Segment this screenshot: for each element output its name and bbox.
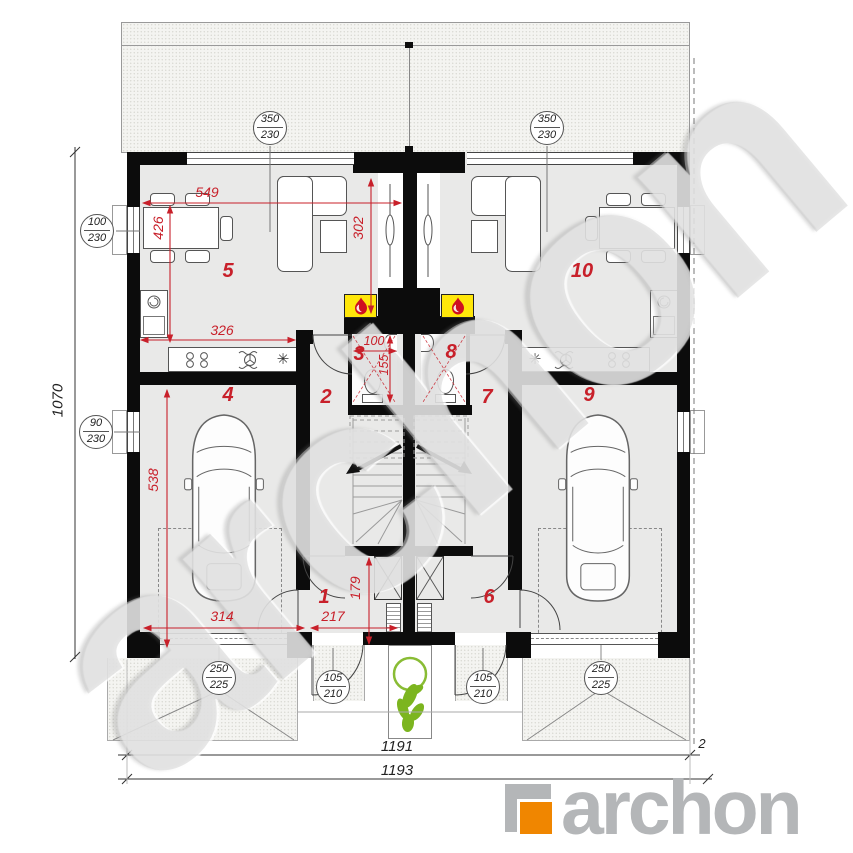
wardrobe (416, 556, 444, 600)
chair (185, 250, 210, 263)
tag-height: 225 (588, 678, 614, 693)
wall (127, 253, 140, 412)
freezer-icon: ✳ (268, 349, 298, 371)
tag-height: 210 (320, 687, 346, 702)
wall (345, 546, 473, 556)
window (677, 412, 690, 452)
dining-table (599, 207, 675, 249)
fireplace (441, 294, 474, 318)
chair (641, 193, 666, 206)
tag-height: 225 (206, 678, 232, 693)
dishwasher-icon (237, 350, 263, 370)
wardrobe (374, 556, 402, 600)
dishwasher-icon (553, 350, 579, 370)
floor-plan: ✳ ✳ (0, 0, 853, 853)
window (127, 412, 140, 452)
wardrobe-x (375, 557, 401, 599)
tag-width: 105 (470, 671, 496, 687)
wall (506, 632, 531, 658)
stove-burners-icon (604, 350, 634, 370)
window (467, 152, 633, 165)
terrace-divider-post (405, 42, 413, 48)
tag-height: 210 (470, 687, 496, 702)
hob-vent-icon (146, 294, 162, 310)
garage-door (160, 633, 287, 645)
room-number-5: 5 (211, 260, 245, 283)
washbasin-icon (421, 334, 434, 352)
tag-width: 90 (83, 416, 109, 432)
wall (348, 405, 472, 415)
room-number-7: 7 (470, 386, 504, 409)
toilet-tank (435, 394, 456, 403)
tag-width: 350 (534, 112, 560, 128)
wall (403, 173, 417, 289)
wall (127, 152, 140, 207)
window-sill (112, 410, 127, 454)
room-number-8: 8 (434, 341, 468, 364)
terrace-door-pocket (417, 173, 440, 288)
entry-door-size-tag: 105 210 (316, 670, 350, 704)
kitchen-sink (653, 316, 675, 335)
flame-icon (353, 296, 369, 316)
window-sill (690, 205, 705, 255)
wall (127, 632, 160, 658)
wall (677, 452, 690, 645)
wall (353, 152, 465, 173)
chair (150, 193, 175, 206)
wall (658, 632, 690, 658)
window-sill (112, 205, 127, 255)
wall (287, 632, 312, 658)
room-number-9: 9 (572, 384, 606, 407)
wall (296, 330, 313, 344)
overall-width-outer-label: 1193 (367, 762, 427, 779)
tag-width: 250 (206, 662, 232, 678)
wall (363, 632, 455, 645)
planter-box (388, 645, 432, 739)
tag-height: 230 (257, 128, 283, 143)
tag-width: 100 (84, 215, 110, 231)
overall-height-label: 1070 (50, 371, 67, 431)
wardrobe-x (417, 557, 443, 599)
wall (677, 152, 690, 207)
garage-door-size-tag: 250 225 (202, 661, 236, 695)
wall (403, 334, 415, 632)
tag-height: 230 (83, 432, 109, 447)
chair (150, 250, 175, 263)
terrace-door-pocket (378, 173, 403, 288)
logo-mark-orange (517, 799, 555, 837)
car-icon (184, 412, 264, 604)
wall (127, 452, 140, 645)
toilet-tank (362, 394, 383, 403)
hob-vent-icon (656, 294, 672, 310)
dim-label: 302 (350, 206, 366, 250)
chair (585, 216, 598, 241)
window-size-tag: 350 230 (253, 111, 287, 145)
window (127, 207, 140, 253)
stove-burners-icon (182, 350, 212, 370)
dim-label: 179 (347, 566, 363, 610)
tag-width: 250 (588, 662, 614, 678)
room-number-3: 3 (342, 343, 376, 366)
entry-door-size-tag: 105 210 (466, 670, 500, 704)
room-number-4: 4 (211, 384, 245, 407)
garage-door (531, 633, 658, 645)
dim-label: 314 (200, 608, 244, 624)
dim-label: 326 (200, 322, 244, 338)
coffee-table (320, 220, 347, 253)
chair (606, 250, 631, 263)
flame-icon (450, 296, 466, 316)
overall-width-inner-label: 1191 (367, 738, 427, 755)
boundary-gap-label: 2 (694, 736, 710, 751)
logo-wordmark: archon (561, 764, 800, 853)
archon-logo: archon (505, 780, 853, 853)
wall (505, 330, 522, 344)
room-number-10: 10 (565, 260, 599, 283)
tag-width: 105 (320, 671, 346, 687)
window-size-tag: 90 230 (79, 415, 113, 449)
entry-door-opening (455, 633, 506, 645)
terrace-divider (409, 45, 410, 153)
garage-door-size-tag: 250 225 (584, 661, 618, 695)
tag-height: 230 (534, 128, 560, 143)
dim-label: 538 (145, 458, 161, 502)
wall (344, 316, 475, 334)
entry-door-opening (312, 633, 363, 645)
window (187, 152, 354, 165)
chair (220, 216, 233, 241)
fireplace (344, 294, 377, 318)
tag-width: 350 (257, 112, 283, 128)
window-sill (690, 410, 705, 454)
wall (677, 253, 690, 412)
window-size-tag: 100 230 (80, 214, 114, 248)
room-number-2: 2 (309, 386, 343, 409)
dim-label: 426 (150, 206, 166, 250)
car-icon (558, 412, 638, 604)
chair (641, 250, 666, 263)
dim-label: 217 (311, 608, 355, 624)
room-number-6: 6 (472, 586, 506, 609)
chair (606, 193, 631, 206)
coffee-table (471, 220, 498, 253)
kitchen-sink (143, 316, 165, 335)
dim-label: 155 (377, 343, 391, 387)
sofa-chaise (277, 176, 313, 272)
window-size-tag: 350 230 (530, 111, 564, 145)
plant-icon (389, 646, 431, 738)
window (677, 207, 690, 253)
freezer-icon: ✳ (520, 349, 550, 371)
dim-label: 549 (185, 184, 229, 200)
room-number-1: 1 (307, 586, 341, 609)
sofa-chaise (505, 176, 541, 272)
tag-height: 230 (84, 231, 110, 246)
